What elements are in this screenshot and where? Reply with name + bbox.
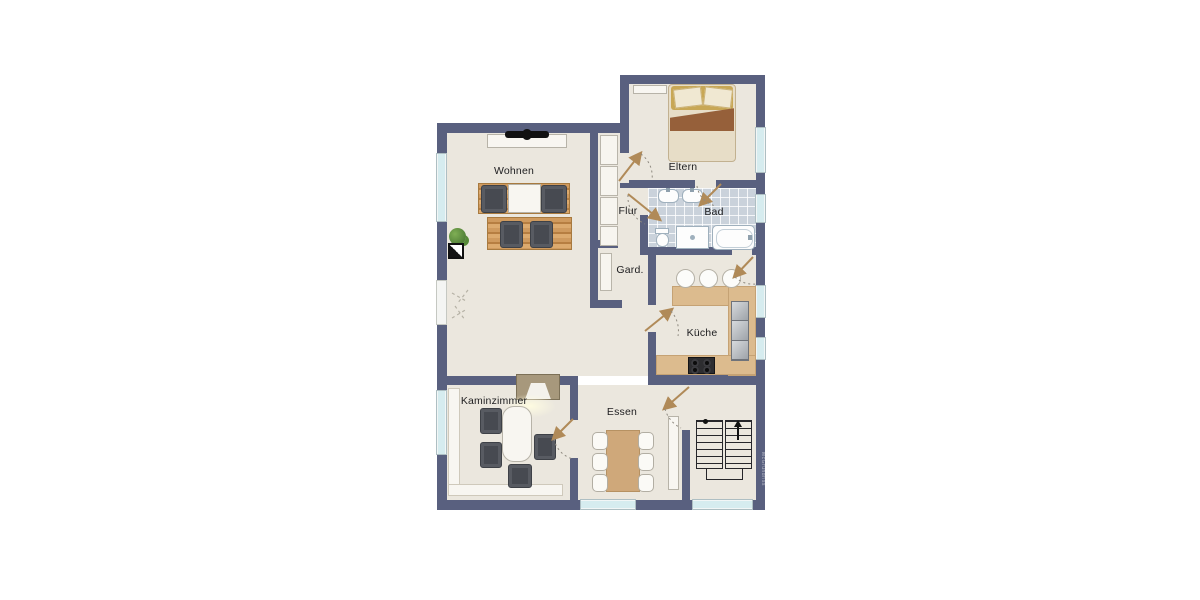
door-arc-kueche <box>671 311 678 336</box>
dash-mark <box>452 309 467 318</box>
door-arrow-essen-stair <box>665 387 689 408</box>
floor-plan: Wohnen Eltern Flur Bad Gard. Küche Kamin… <box>0 0 1200 600</box>
door-annotation-layer <box>0 0 1200 600</box>
door-swing-arcs <box>554 154 756 459</box>
room-label-kueche: Küche <box>687 327 718 339</box>
door-arrow-kueche <box>645 310 671 331</box>
room-label-essen: Essen <box>607 406 637 418</box>
room-label-eltern: Eltern <box>669 161 698 173</box>
door-arc-bad-kueche <box>735 277 756 284</box>
room-label-wohnen: Wohnen <box>494 165 534 177</box>
room-label-gard: Gard. <box>616 264 643 276</box>
door-arrows <box>554 154 753 438</box>
ceiling-marks <box>452 290 468 320</box>
room-label-flur: Flur <box>619 205 638 217</box>
room-label-bad: Bad <box>704 206 723 218</box>
door-arc-eltern <box>641 154 652 180</box>
door-arrow-eltern <box>619 154 640 181</box>
dash-mark <box>455 306 465 320</box>
door-arc-kaminzimmer <box>554 439 573 459</box>
door-arrow-kaminzimmer <box>554 419 573 438</box>
watermark-text: McGrundriss <box>757 452 766 504</box>
door-arrow-bad-kueche <box>735 257 753 276</box>
door-arc-essen-stair <box>665 409 681 428</box>
room-label-kaminzimmer: Kaminzimmer <box>461 395 527 407</box>
door-arrow-bad-eltern <box>701 184 721 204</box>
door-arc-bad-eltern <box>697 186 716 206</box>
dash-mark <box>452 293 466 301</box>
